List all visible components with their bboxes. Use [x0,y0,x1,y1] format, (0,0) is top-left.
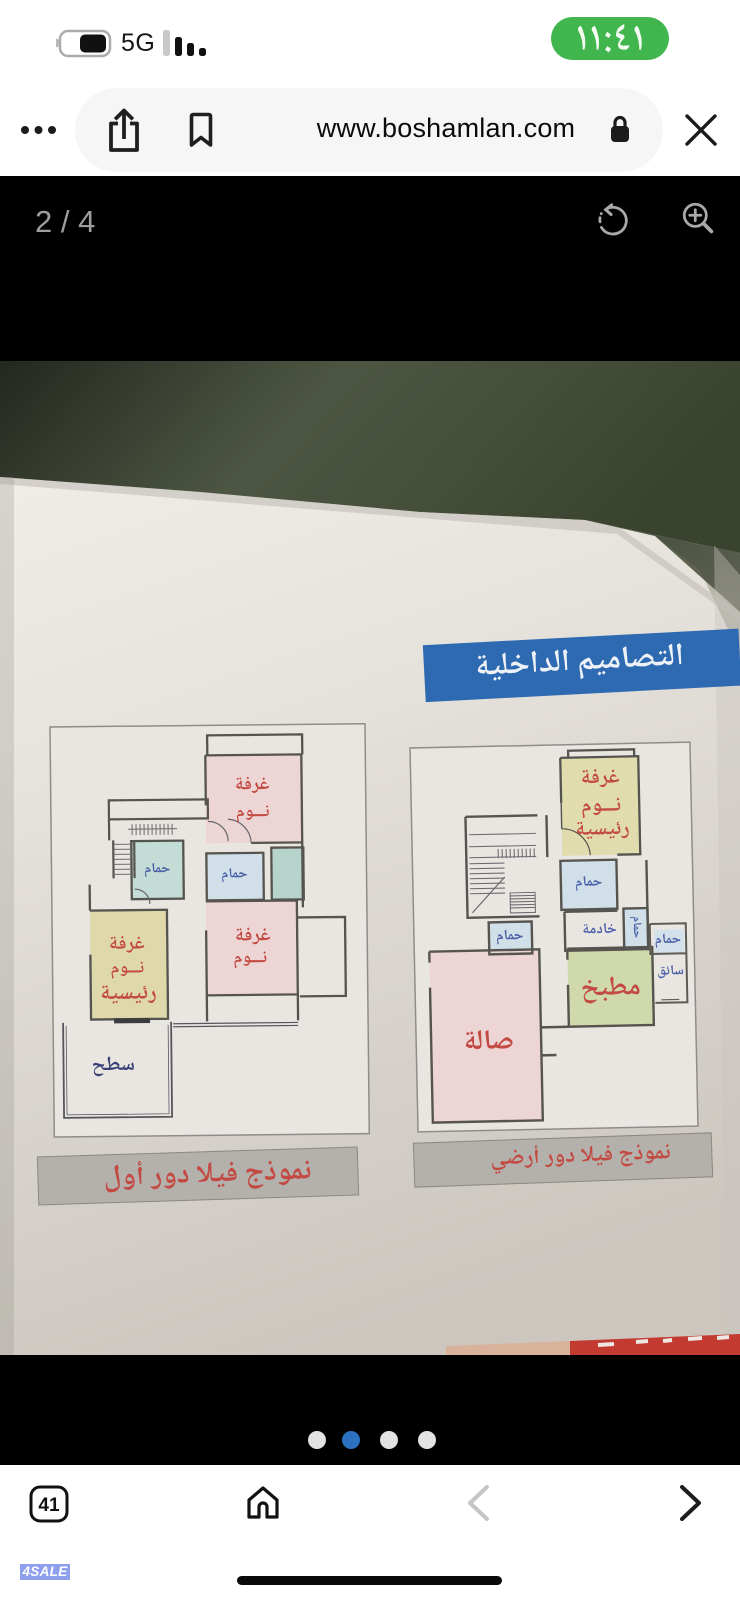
svg-text:41: 41 [38,1495,60,1516]
